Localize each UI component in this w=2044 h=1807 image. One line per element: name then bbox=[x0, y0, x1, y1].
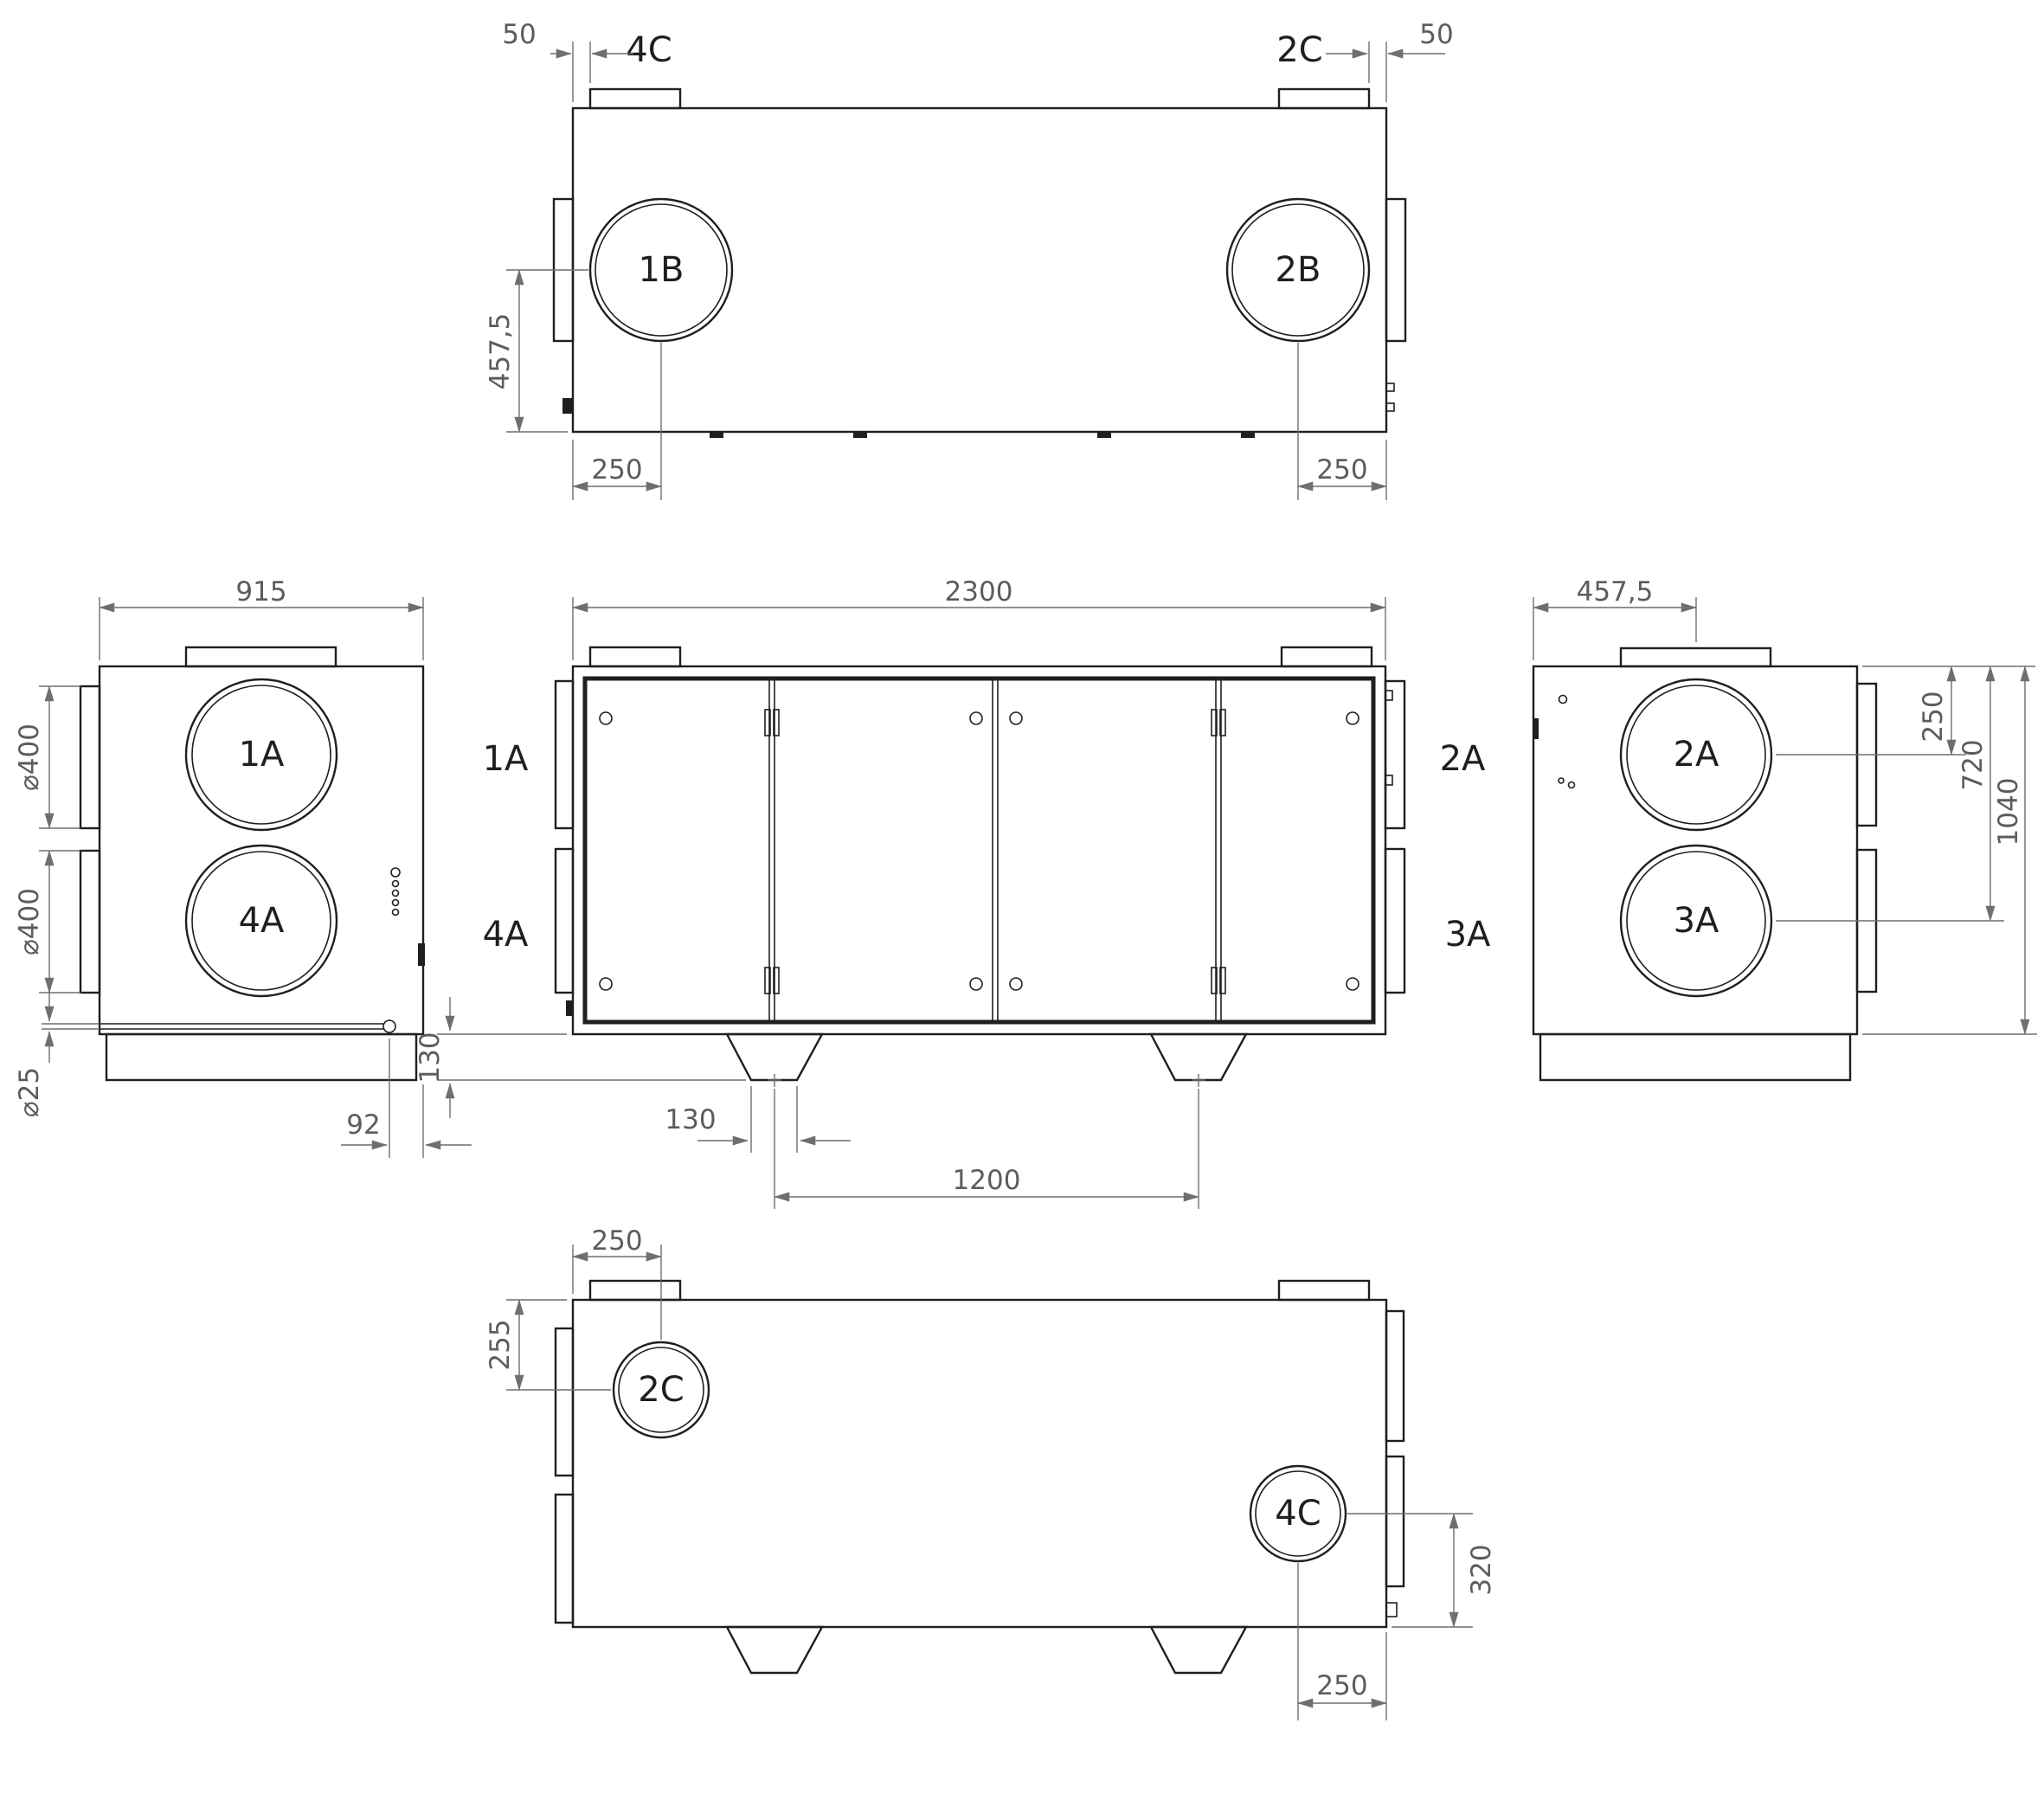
foot-center-ticks bbox=[768, 1074, 1205, 1087]
clip bbox=[853, 432, 867, 438]
hinge-holes bbox=[391, 868, 400, 916]
flange-label-2c: 2C bbox=[1276, 30, 1322, 70]
dim-foot-width: 130 bbox=[665, 1086, 851, 1153]
base-rail bbox=[1540, 1034, 1850, 1080]
door-frame bbox=[585, 678, 1373, 1022]
hinge-tab bbox=[418, 943, 425, 966]
latch-detail bbox=[1386, 383, 1394, 391]
latch-detail bbox=[1386, 1603, 1397, 1617]
right-side-view: 2A 3A 457,5 250 720 1040 bbox=[1533, 576, 2037, 1080]
svg-text:915: 915 bbox=[235, 576, 286, 608]
engineering-drawing: 1B 2B 4C 2C 50 50 bbox=[0, 0, 2044, 1807]
left-view-outline bbox=[100, 666, 423, 1034]
dim-dia-1a: ⌀400 bbox=[14, 686, 80, 828]
technical-drawing-page: 1B 2B 4C 2C 50 50 bbox=[0, 0, 2044, 1807]
bottom-view: 2C 4C 250 255 320 250 bbox=[485, 1225, 1497, 1720]
flange-label-4c: 4C bbox=[626, 30, 672, 70]
front-view: 1A 4A 2A 3A 2300 130 130 bbox=[415, 576, 1491, 1209]
svg-text:320: 320 bbox=[1466, 1544, 1497, 1595]
side-label-3a: 3A bbox=[1445, 915, 1491, 955]
svg-text:255: 255 bbox=[485, 1319, 516, 1370]
foot-left bbox=[727, 1034, 822, 1080]
top-duct-flange-4c bbox=[590, 647, 680, 666]
top-view-outline bbox=[573, 108, 1386, 432]
svg-text:457,5: 457,5 bbox=[485, 313, 516, 390]
top-duct-flange-4c bbox=[590, 89, 680, 108]
svg-text:250: 250 bbox=[591, 1225, 642, 1257]
dim-right-heights: 250 720 1040 bbox=[1776, 666, 2037, 1034]
port-label-1b: 1B bbox=[639, 250, 685, 290]
drain-pipe bbox=[100, 1020, 395, 1032]
svg-text:1200: 1200 bbox=[953, 1165, 1021, 1196]
svg-text:50: 50 bbox=[502, 19, 536, 50]
port-label-3a: 3A bbox=[1674, 901, 1719, 941]
port-label-4c: 4C bbox=[1275, 1494, 1321, 1534]
drain-outlet bbox=[383, 1020, 395, 1032]
right-view-outline bbox=[1533, 666, 1857, 1034]
side-flange bbox=[1386, 1311, 1404, 1441]
svg-text:⌀25: ⌀25 bbox=[14, 1067, 45, 1117]
bottom-view-outline bbox=[573, 1300, 1386, 1627]
side-flange bbox=[556, 1495, 573, 1623]
port-label-2b: 2B bbox=[1276, 250, 1321, 290]
top-flange bbox=[186, 647, 336, 666]
top-duct-flange-2c bbox=[1279, 89, 1369, 108]
dim-top-port-right: 250 bbox=[1298, 343, 1386, 500]
svg-text:250: 250 bbox=[1316, 454, 1367, 486]
side-flange-right bbox=[1386, 199, 1405, 341]
dim-bottom-port-right-y: 320 bbox=[1347, 1514, 1497, 1627]
svg-text:⌀400: ⌀400 bbox=[14, 723, 45, 791]
dim-bottom-port-left-y: 255 bbox=[485, 1300, 611, 1390]
latch-detail bbox=[1386, 403, 1394, 411]
duct-flange-1a bbox=[80, 686, 100, 828]
dim-bottom-port-right-x: 250 bbox=[1298, 1563, 1386, 1720]
door-knobs bbox=[600, 712, 1359, 990]
clip bbox=[710, 432, 723, 438]
hinge-tab bbox=[562, 398, 572, 414]
hinge-tab bbox=[566, 1000, 574, 1016]
top-view: 1B 2B 4C 2C 50 50 bbox=[485, 19, 1454, 500]
top-duct-flange-2c bbox=[1282, 647, 1372, 666]
top-flange bbox=[1621, 648, 1771, 666]
svg-text:⌀400: ⌀400 bbox=[14, 888, 45, 955]
top-duct-flange bbox=[590, 1281, 680, 1300]
dim-drain-offset: 92 bbox=[341, 1039, 472, 1158]
foot-left bbox=[727, 1627, 822, 1673]
duct-flange-1a bbox=[556, 681, 573, 828]
dim-foot-height: 130 bbox=[415, 997, 746, 1118]
svg-text:250: 250 bbox=[591, 454, 642, 486]
svg-text:130: 130 bbox=[415, 1032, 446, 1083]
foot-right bbox=[1151, 1627, 1246, 1673]
port-label-2a: 2A bbox=[1674, 735, 1719, 775]
svg-text:250: 250 bbox=[1316, 1670, 1367, 1701]
door-splits bbox=[769, 678, 1221, 1022]
duct-flange-3a bbox=[1385, 849, 1404, 993]
svg-text:50: 50 bbox=[1419, 19, 1453, 50]
side-label-4a: 4A bbox=[483, 915, 529, 955]
duct-flange-4a bbox=[80, 851, 100, 993]
svg-text:457,5: 457,5 bbox=[1577, 576, 1654, 608]
dim-front-length: 2300 bbox=[573, 576, 1385, 660]
side-label-1a: 1A bbox=[483, 739, 529, 779]
dim-top-port-left: 250 bbox=[573, 343, 661, 500]
svg-text:92: 92 bbox=[346, 1109, 380, 1141]
port-label-2c: 2C bbox=[638, 1370, 684, 1410]
svg-text:130: 130 bbox=[665, 1104, 716, 1135]
left-side-view: 1A 4A 915 ⌀400 bbox=[14, 576, 472, 1158]
clip bbox=[1097, 432, 1111, 438]
svg-text:720: 720 bbox=[1957, 739, 1989, 790]
duct-flange-4a bbox=[556, 849, 573, 993]
hinge-holes bbox=[1559, 696, 1575, 788]
dim-bottom-port-left-x: 250 bbox=[573, 1225, 661, 1340]
door-hinges bbox=[765, 710, 1225, 994]
dim-dia-drain: ⌀25 bbox=[14, 990, 100, 1117]
side-flange bbox=[1386, 1457, 1404, 1586]
hinge-tab bbox=[1533, 718, 1539, 739]
svg-text:1040: 1040 bbox=[1993, 778, 2024, 846]
side-label-2a: 2A bbox=[1440, 739, 1486, 779]
clip bbox=[1241, 432, 1255, 438]
top-duct-flange bbox=[1279, 1281, 1369, 1300]
port-label-1a: 1A bbox=[239, 735, 285, 775]
base-rail bbox=[106, 1034, 416, 1080]
side-flange bbox=[556, 1328, 573, 1476]
duct-flange-2a bbox=[1385, 681, 1404, 828]
svg-text:250: 250 bbox=[1918, 691, 1949, 742]
foot-right bbox=[1151, 1034, 1246, 1080]
port-label-4a: 4A bbox=[239, 901, 285, 941]
dim-dia-4a: ⌀400 bbox=[14, 851, 80, 993]
dim-foot-spacing: 1200 bbox=[775, 1089, 1199, 1209]
svg-text:2300: 2300 bbox=[945, 576, 1013, 608]
